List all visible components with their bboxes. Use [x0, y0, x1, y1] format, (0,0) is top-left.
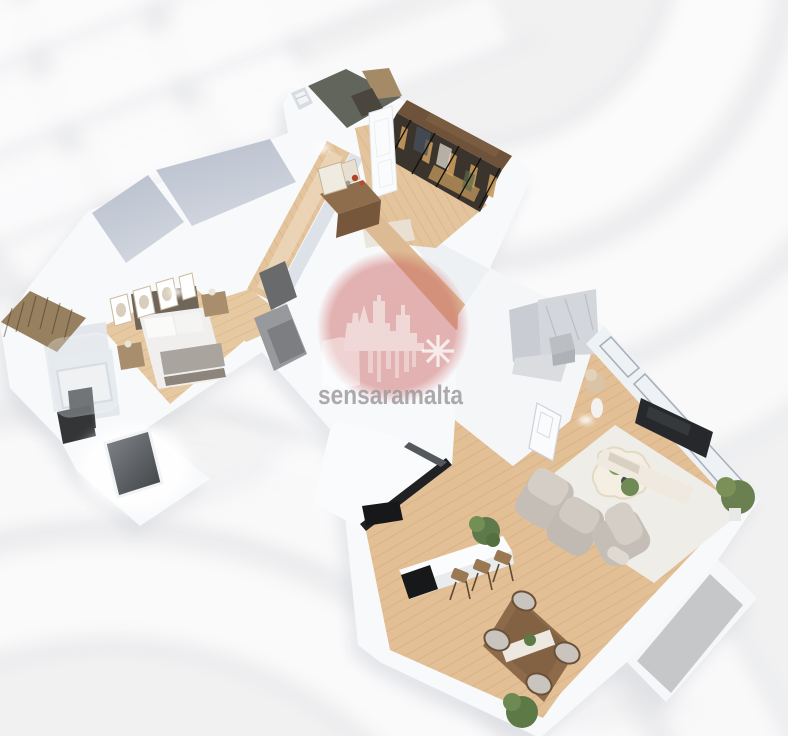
svg-text:sensaramalta: sensaramalta [318, 380, 464, 410]
